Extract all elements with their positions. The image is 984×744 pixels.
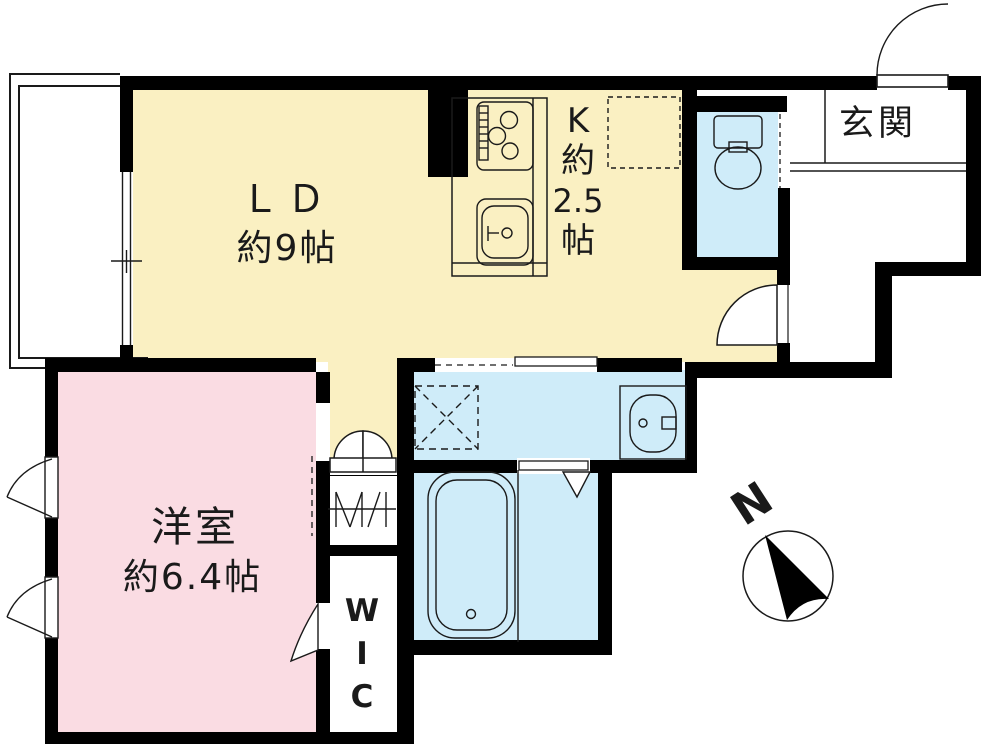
kitchen-label-line: 約 [561,141,595,181]
room-label-western-room: 洋室 [100,504,290,551]
compass [743,531,833,621]
room-label-kitchen: K 約 2.5 帖 [549,101,607,261]
storage-shelf-symbol [328,492,396,527]
room-label-living-dining: ＬＤ [170,178,404,222]
wic-label-line: I [356,633,368,676]
wic-label-line: C [351,676,374,719]
entrance-door [877,4,948,87]
room-label-entrance: 玄関 [792,104,964,144]
kitchen-label-line: 2.5 [553,181,604,221]
room-size-living-dining: 約9帖 [170,228,404,269]
room-size-western-room: 約6.4帖 [60,557,325,598]
room-label-wic: W I C [338,590,386,719]
washroom-sliding-door [515,357,597,366]
western-room-floor [58,372,316,732]
wic-label-line: W [345,590,379,633]
room-fills [58,90,779,732]
kitchen-label-line: 帖 [561,221,595,261]
casement-window-lower [7,577,58,638]
kitchen-label-line: K [567,101,589,141]
bathroom-door-panel [519,461,588,470]
floor-plan: ＬＤ 約9帖 K 約 2.5 帖 玄関 洋室 約6.4帖 W I C N [0,0,984,744]
casement-window-upper [7,457,58,518]
toilet-floor [695,112,779,257]
